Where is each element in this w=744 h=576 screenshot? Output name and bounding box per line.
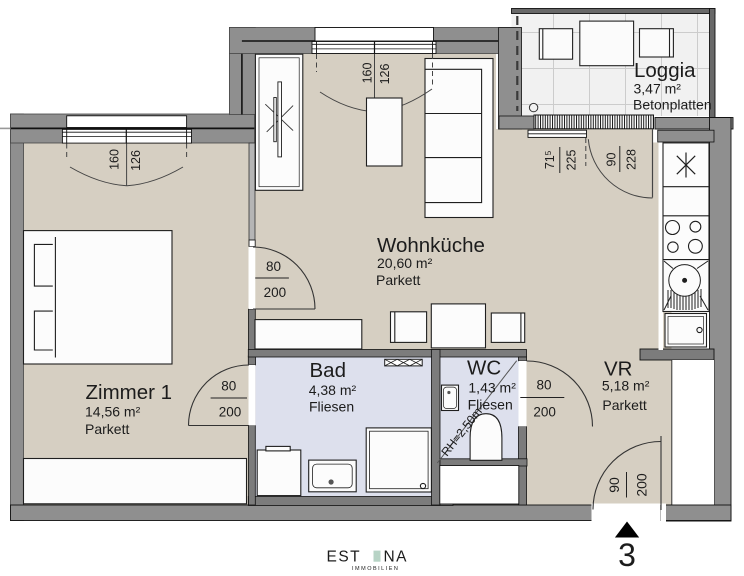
svg-text:3: 3 [618,537,636,573]
svg-text:Bad: Bad [310,359,346,382]
svg-text:228: 228 [625,149,639,170]
svg-text:Parkett: Parkett [376,272,420,288]
svg-text:90: 90 [606,477,622,493]
svg-text:200: 200 [219,405,242,420]
svg-text:14,56 m²: 14,56 m² [85,404,141,420]
svg-text:NA: NA [384,549,408,566]
svg-text:Betonplatten: Betonplatten [633,97,712,113]
svg-text:200: 200 [634,473,650,497]
svg-text:90: 90 [605,153,619,167]
svg-text:126: 126 [378,64,392,85]
svg-text:3,47 m²: 3,47 m² [634,81,682,97]
svg-text:160: 160 [108,149,122,170]
svg-text:5,18 m²: 5,18 m² [602,378,650,394]
svg-text:Parkett: Parkett [85,421,129,437]
svg-text:200: 200 [264,285,287,300]
svg-text:4,38 m²: 4,38 m² [309,382,357,398]
svg-text:225: 225 [565,150,579,171]
svg-text:1,43 m²: 1,43 m² [468,380,516,396]
svg-text:Zimmer 1: Zimmer 1 [86,381,173,404]
svg-text:20,60 m²: 20,60 m² [377,255,433,271]
svg-text:Loggia: Loggia [634,59,696,82]
svg-text:IMMOBILIEN: IMMOBILIEN [352,566,399,572]
svg-text:EST: EST [327,549,362,566]
svg-text:80: 80 [536,378,551,393]
svg-text:80: 80 [266,259,281,274]
svg-text:80: 80 [221,379,236,394]
svg-text:Fliesen: Fliesen [309,398,354,414]
svg-text:160: 160 [361,63,375,84]
svg-text:Wohnküche: Wohnküche [377,234,485,257]
svg-text:WC: WC [467,357,501,380]
svg-text:Fliesen: Fliesen [468,396,513,412]
svg-text:200: 200 [533,404,556,419]
svg-text:Parkett: Parkett [602,397,646,413]
svg-text:126: 126 [129,150,143,171]
